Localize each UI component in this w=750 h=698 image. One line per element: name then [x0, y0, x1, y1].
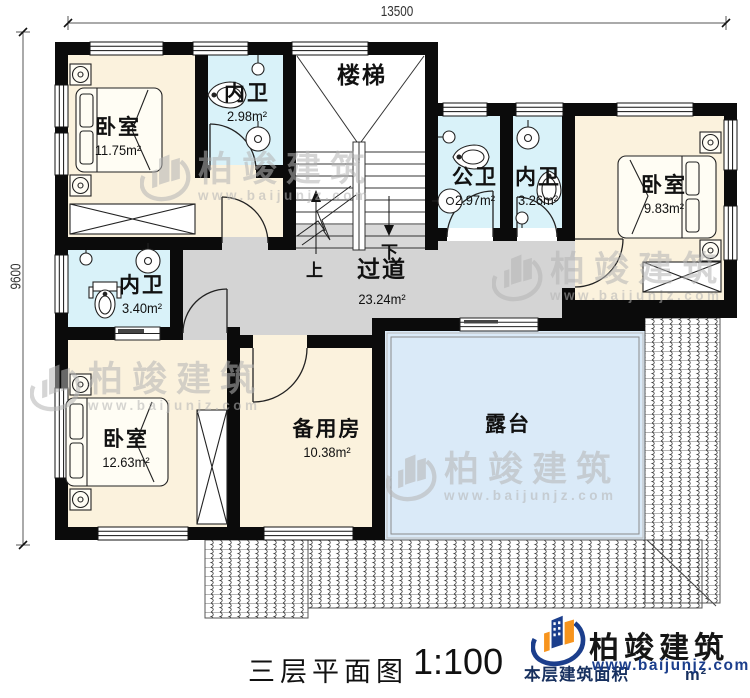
watermark: 柏竣建筑 www.baijunjz.com	[386, 450, 620, 504]
window-bottom-spare-room	[264, 527, 353, 540]
plan-title: 三层平面图	[248, 650, 408, 689]
watermark: 柏竣建筑 www.baijunjz.com	[140, 150, 374, 204]
slider-terrace-door	[460, 318, 538, 331]
watermark-brand: 柏竣建筑	[198, 152, 374, 188]
dimension-height: 9600	[8, 252, 25, 302]
nightstand	[70, 489, 91, 510]
watermark-url: www.baijunjz.com	[198, 188, 374, 203]
window-top-bath-tl	[193, 42, 248, 55]
company-logo-icon	[531, 611, 587, 669]
stair-up-label: 上	[306, 256, 323, 281]
brand-logo-icon	[492, 250, 544, 304]
window-top-stairs	[292, 42, 368, 55]
window-bottom-bedroom-bl	[98, 527, 188, 540]
window-left-bath-ml	[55, 255, 68, 313]
nightstand	[700, 132, 721, 153]
nightstand	[70, 175, 91, 196]
watermark: 柏竣建筑 www.baijunjz.com	[30, 360, 264, 414]
window-top-bedroom-tr	[617, 103, 693, 116]
window-top-public-bath	[443, 103, 487, 116]
floor-plan-drawing	[0, 0, 750, 698]
window-top-bath-tr	[516, 103, 563, 116]
watermark: 柏竣建筑 www.baijunjz.com	[492, 250, 726, 304]
plan-scale: 1:100	[413, 641, 503, 683]
brand-logo-icon	[140, 150, 192, 204]
window-left-bedroom-tl-a	[55, 85, 68, 127]
nightstand	[70, 64, 91, 85]
window-left-bedroom-tl-b	[55, 133, 68, 175]
slider-bath-ml	[115, 327, 160, 340]
wardrobe-bedroom-tl	[70, 204, 195, 234]
dimension-width: 13500	[362, 3, 432, 20]
brand-logo-icon	[386, 450, 438, 504]
company-logo: 柏竣建筑 www.baijunjz.com	[531, 611, 746, 674]
window-top-bedroom-tl	[90, 42, 163, 55]
window-right-bedroom-tr-a	[724, 120, 737, 170]
wardrobe-bedroom-bl	[197, 410, 227, 524]
floor-plan-page: 柏竣建筑 www.baijunjz.com 柏竣建筑 www.baijunjz.…	[0, 0, 750, 698]
stair-down-label: 下	[381, 238, 398, 263]
company-logo-url: www.baijunjz.com	[592, 657, 750, 675]
brand-logo-icon	[30, 360, 82, 414]
